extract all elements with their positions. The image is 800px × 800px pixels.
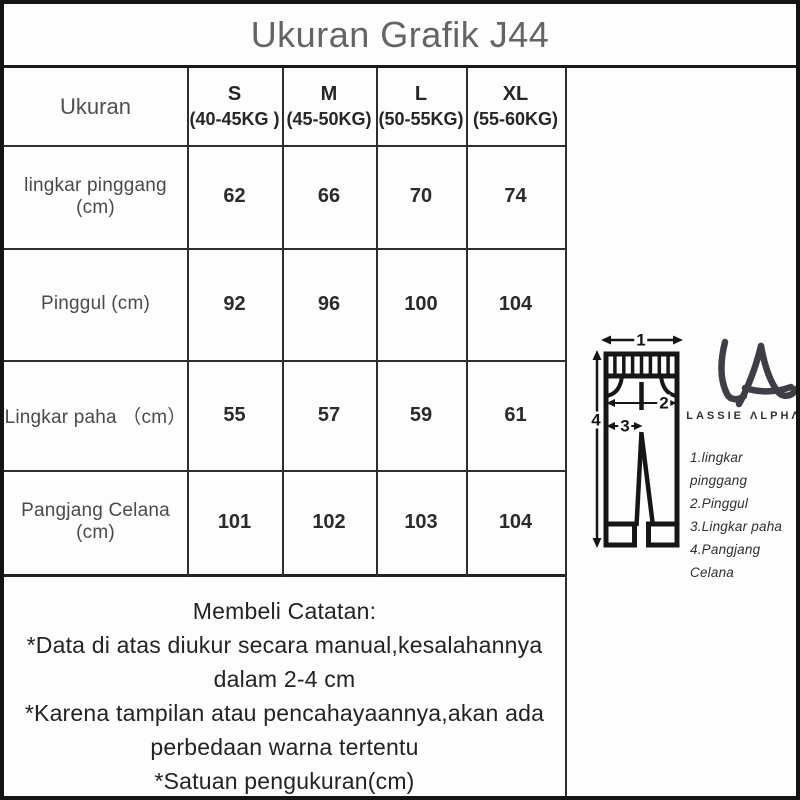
table-cell: 101	[187, 470, 282, 574]
size-label: XL	[503, 82, 529, 107]
table-cell: 100	[376, 248, 466, 360]
grid-line	[4, 574, 565, 577]
page-title: Ukuran Grafik J44	[4, 4, 796, 65]
table-cell: 102	[282, 470, 376, 574]
legend-item: 3.Lingkar paha	[690, 515, 800, 538]
legend-item: 2.Pinggul	[690, 492, 800, 515]
size-chart-image: Ukuran Grafik J44 Ukuran S (40-45KG ) M …	[0, 0, 800, 800]
column-header-m: M (45-50KG)	[282, 68, 376, 145]
table-cell: 57	[282, 360, 376, 470]
notes-line: dalam 2-4 cm	[4, 662, 565, 696]
row-label-pinggul: Pinggul (cm)	[4, 248, 187, 360]
measure-label-hip: 2	[657, 395, 670, 412]
table-cell: 62	[187, 145, 282, 248]
measure-label-waist: 1	[634, 332, 647, 349]
brand-name: LASSIE ΛLPHΛ	[681, 410, 800, 422]
table-cell: 74	[466, 145, 565, 248]
notes-line: *Karena tampilan atau pencahayaannya,aka…	[4, 696, 565, 730]
column-header-xl: XL (55-60KG)	[466, 68, 565, 145]
table-cell: 104	[466, 248, 565, 360]
weight-range: (40-45KG )	[189, 107, 279, 132]
measure-label-length: 4	[589, 412, 602, 429]
table-cell: 55	[187, 360, 282, 470]
notes-line: *Satuan pengukuran(cm)	[4, 764, 565, 798]
brand-monogram-icon	[705, 336, 800, 408]
table-cell: 70	[376, 145, 466, 248]
table-cell: 104	[466, 470, 565, 574]
row-label-lingkar-pinggang: lingkar pinggang (cm)	[4, 145, 187, 248]
column-header-l: L (50-55KG)	[376, 68, 466, 145]
column-header-s: S (40-45KG )	[187, 68, 282, 145]
notes-line: *Data di atas diukur secara manual,kesal…	[4, 628, 565, 662]
table-cell: 92	[187, 248, 282, 360]
weight-range: (55-60KG)	[473, 107, 558, 132]
table-cell: 59	[376, 360, 466, 470]
table-cell: 96	[282, 248, 376, 360]
weight-range: (45-50KG)	[286, 107, 371, 132]
column-header-ukuran: Ukuran	[4, 68, 187, 145]
measurement-diagram-panel: 1 2 3 4 LASSIE ΛLPHΛ 1.lingkar pinggang …	[565, 69, 800, 798]
weight-range: (50-55KG)	[378, 107, 463, 132]
size-label: M	[321, 82, 338, 107]
legend-item: 1.lingkar pinggang	[690, 446, 800, 492]
pants-diagram-icon	[587, 330, 699, 570]
notes-line: perbedaan warna tertentu	[4, 730, 565, 764]
measure-label-thigh: 3	[618, 418, 631, 435]
table-cell: 61	[466, 360, 565, 470]
size-label: S	[228, 82, 241, 107]
diagram-legend: 1.lingkar pinggang 2.Pinggul 3.Lingkar p…	[690, 446, 800, 584]
table-cell: 66	[282, 145, 376, 248]
row-label-lingkar-paha: Lingkar paha （cm）	[4, 360, 187, 470]
row-label-pangjang-celana: Pangjang Celana (cm)	[4, 470, 187, 574]
buyer-notes: Membeli Catatan: *Data di atas diukur se…	[4, 594, 565, 798]
notes-heading: Membeli Catatan:	[4, 594, 565, 628]
size-label: L	[415, 82, 427, 107]
table-cell: 103	[376, 470, 466, 574]
legend-item: 4.Pangjang Celana	[690, 538, 800, 584]
